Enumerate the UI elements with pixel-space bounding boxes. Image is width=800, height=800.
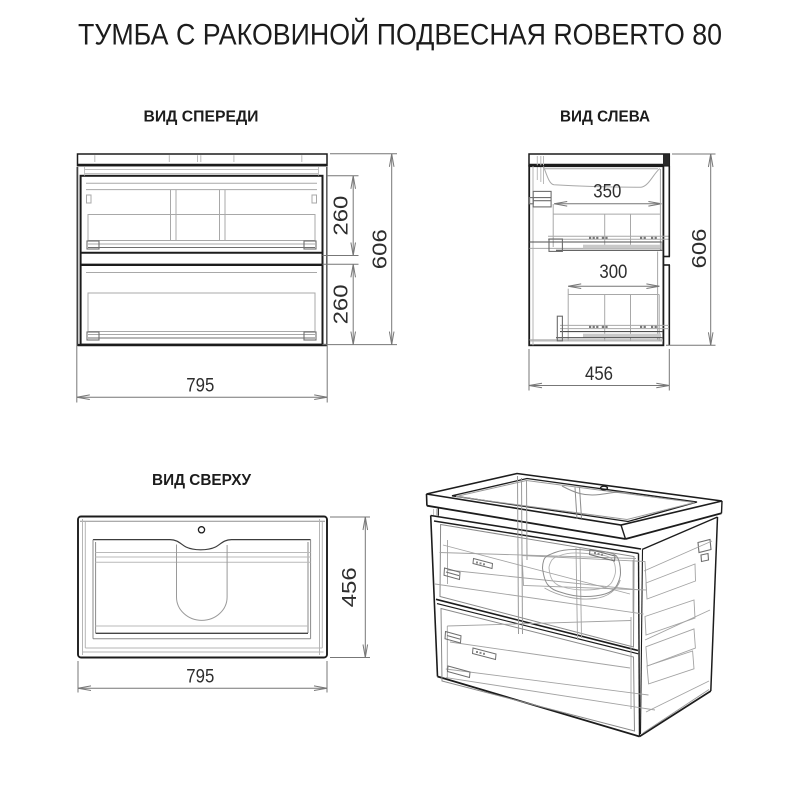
svg-text:795: 795 [186,667,214,688]
svg-text:795: 795 [186,376,214,397]
svg-text:260: 260 [331,284,353,324]
svg-text:260: 260 [331,196,353,236]
svg-text:300: 300 [599,262,627,283]
svg-text:ТУМБА С РАКОВИНОЙ ПОДВЕСНАЯ RO: ТУМБА С РАКОВИНОЙ ПОДВЕСНАЯ ROBERTO 80 [78,18,722,52]
svg-text:ВИД СЛЕВА: ВИД СЛЕВА [560,109,650,126]
svg-text:350: 350 [593,181,621,202]
svg-text:ВИД СВЕРХУ: ВИД СВЕРХУ [152,472,251,489]
svg-text:456: 456 [585,364,613,385]
svg-text:606: 606 [689,229,711,269]
svg-text:606: 606 [370,229,392,269]
svg-text:ВИД СПЕРЕДИ: ВИД СПЕРЕДИ [144,109,259,126]
svg-text:456: 456 [339,567,361,607]
